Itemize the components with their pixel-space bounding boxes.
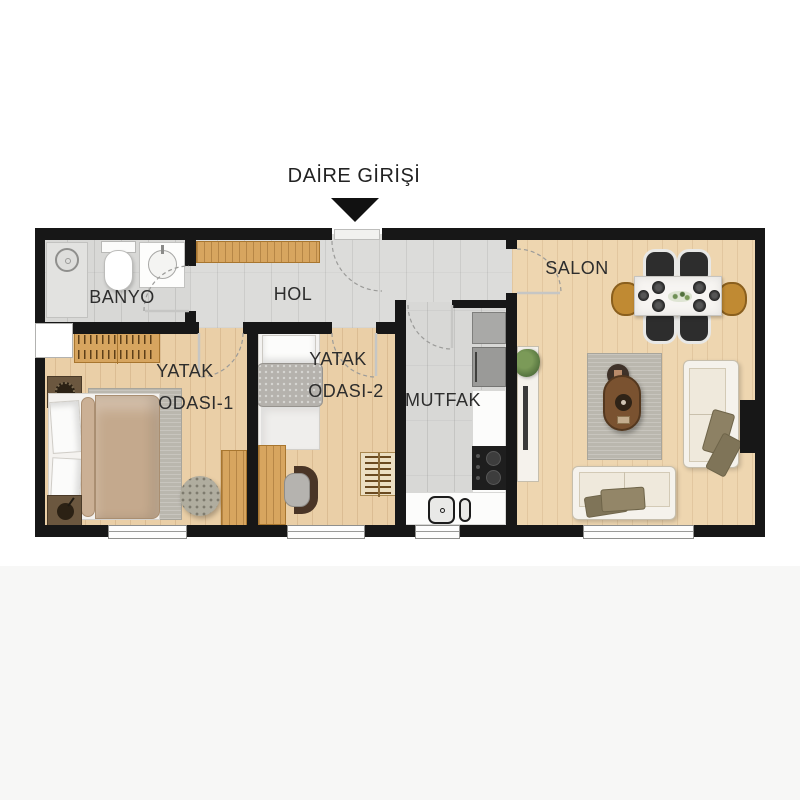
- kitchen-door-arc: [408, 305, 452, 349]
- room-label-yatak2-line2: ODASI-2: [308, 381, 384, 402]
- entrance-door-arc: [332, 241, 382, 291]
- room-label-hol: HOL: [274, 284, 313, 305]
- room-label-yatak2-line1: YATAK: [309, 349, 367, 370]
- room-label-yatak1-line2: ODASI-1: [158, 393, 234, 414]
- room-label-banyo: BANYO: [89, 287, 155, 308]
- door-swings-layer: [0, 0, 800, 800]
- room-label-yatak1-line1: YATAK: [156, 361, 214, 382]
- room-label-salon: SALON: [545, 258, 609, 279]
- room-label-mutfak: MUTFAK: [405, 390, 481, 411]
- floor-plan: DAİRE GİRİŞİ: [0, 0, 800, 800]
